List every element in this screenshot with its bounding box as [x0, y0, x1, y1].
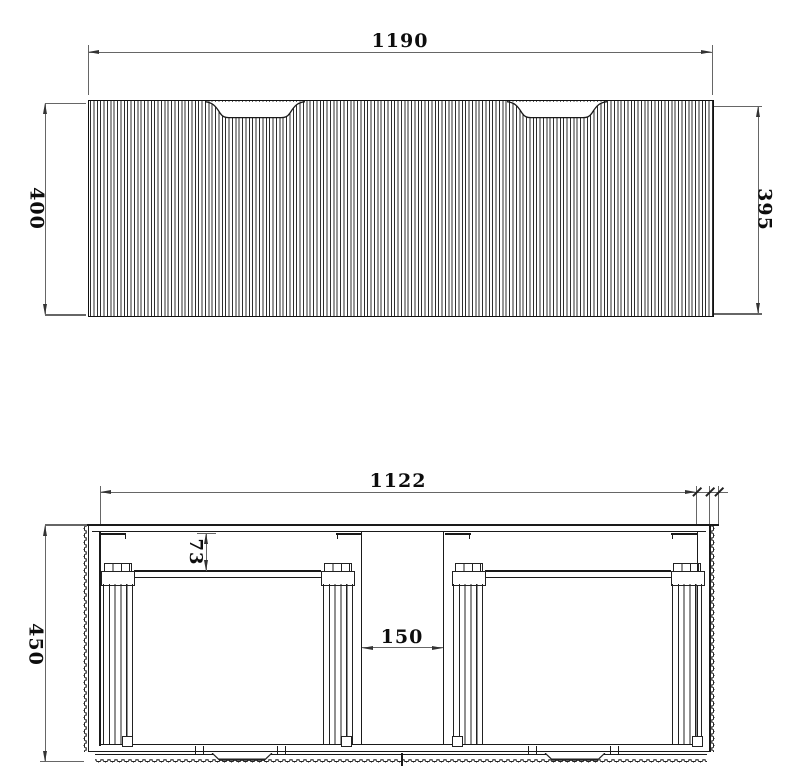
handle-recess-right	[544, 753, 606, 762]
slide-rails	[453, 584, 483, 744]
side-panel-left-inner	[99, 531, 100, 746]
dim-arrow	[43, 525, 47, 536]
slide-bracket-tick	[125, 533, 126, 539]
drawer-back-right2	[485, 577, 671, 578]
recess-tick	[536, 746, 537, 754]
ext-line	[45, 103, 86, 104]
dim-arrow	[432, 646, 443, 650]
drawer-back-left	[134, 570, 321, 571]
dim-arrow	[756, 106, 760, 117]
slide-foot	[341, 736, 352, 747]
recess-tick	[528, 746, 529, 754]
slide-bracket	[336, 533, 362, 534]
front-view: 1190 400 395	[0, 0, 800, 400]
slide-bracket	[100, 533, 126, 534]
fluted-front-panel	[88, 100, 714, 317]
section-view: 1122 450 73 150	[0, 400, 800, 784]
front-inner-line	[100, 744, 697, 745]
dim-arrow	[43, 103, 47, 114]
side-panel-left-outer	[88, 525, 89, 752]
slide-rails	[672, 584, 702, 744]
dim-arrow	[756, 303, 760, 314]
dim-arrow	[701, 50, 712, 54]
fluted-edge-left	[80, 525, 87, 752]
slide-bracket	[671, 533, 697, 534]
back-panel-outer-line	[81, 524, 719, 526]
recess-tick	[195, 746, 196, 754]
technical-drawing-sheet: 1190 400 395	[0, 0, 800, 784]
slide-rails	[103, 584, 133, 744]
recess-tick	[203, 746, 204, 754]
handle-recess-left	[211, 753, 273, 762]
dim-back-clearance: 73	[188, 525, 204, 579]
fluted-edge-right	[711, 525, 718, 752]
dim-center-gap: 150	[352, 629, 452, 646]
dim-width-front: 1190	[88, 33, 712, 50]
front-edge-line	[88, 751, 710, 753]
dim-arrow	[43, 304, 47, 315]
slide-bracket-tick	[469, 533, 470, 539]
dim-arrow	[88, 50, 99, 54]
drawer-back-left2	[134, 577, 321, 578]
handle-notch-left	[205, 101, 305, 120]
slide-foot	[692, 736, 703, 747]
drawer-back-right	[485, 570, 671, 571]
ext-line	[714, 106, 762, 107]
dim-arrow	[43, 751, 47, 762]
slide-foot	[122, 736, 133, 747]
ext-line	[45, 314, 86, 315]
recess-tick	[610, 746, 611, 754]
dim-arrow	[362, 646, 373, 650]
handle-notch-right	[507, 101, 607, 120]
slide-bracket-tick	[337, 533, 338, 539]
recess-tick	[618, 746, 619, 754]
recess-tick	[277, 746, 278, 754]
slide-rails	[323, 584, 353, 744]
dim-height-left: 400	[28, 181, 45, 237]
slide-bracket-tick	[672, 533, 673, 539]
ext-line	[714, 313, 762, 314]
dim-inner-width: 1122	[100, 473, 696, 490]
back-panel-inner-line	[92, 531, 706, 532]
dim-depth: 450	[27, 617, 44, 673]
recess-tick	[285, 746, 286, 754]
drawer-front-divider	[401, 753, 402, 766]
ext-line	[45, 524, 87, 525]
dim-height-right: 395	[756, 182, 773, 238]
dim-arrow	[100, 490, 111, 494]
slide-bracket	[445, 533, 471, 534]
slide-foot	[452, 736, 463, 747]
side-panel-right-outer	[709, 525, 710, 752]
